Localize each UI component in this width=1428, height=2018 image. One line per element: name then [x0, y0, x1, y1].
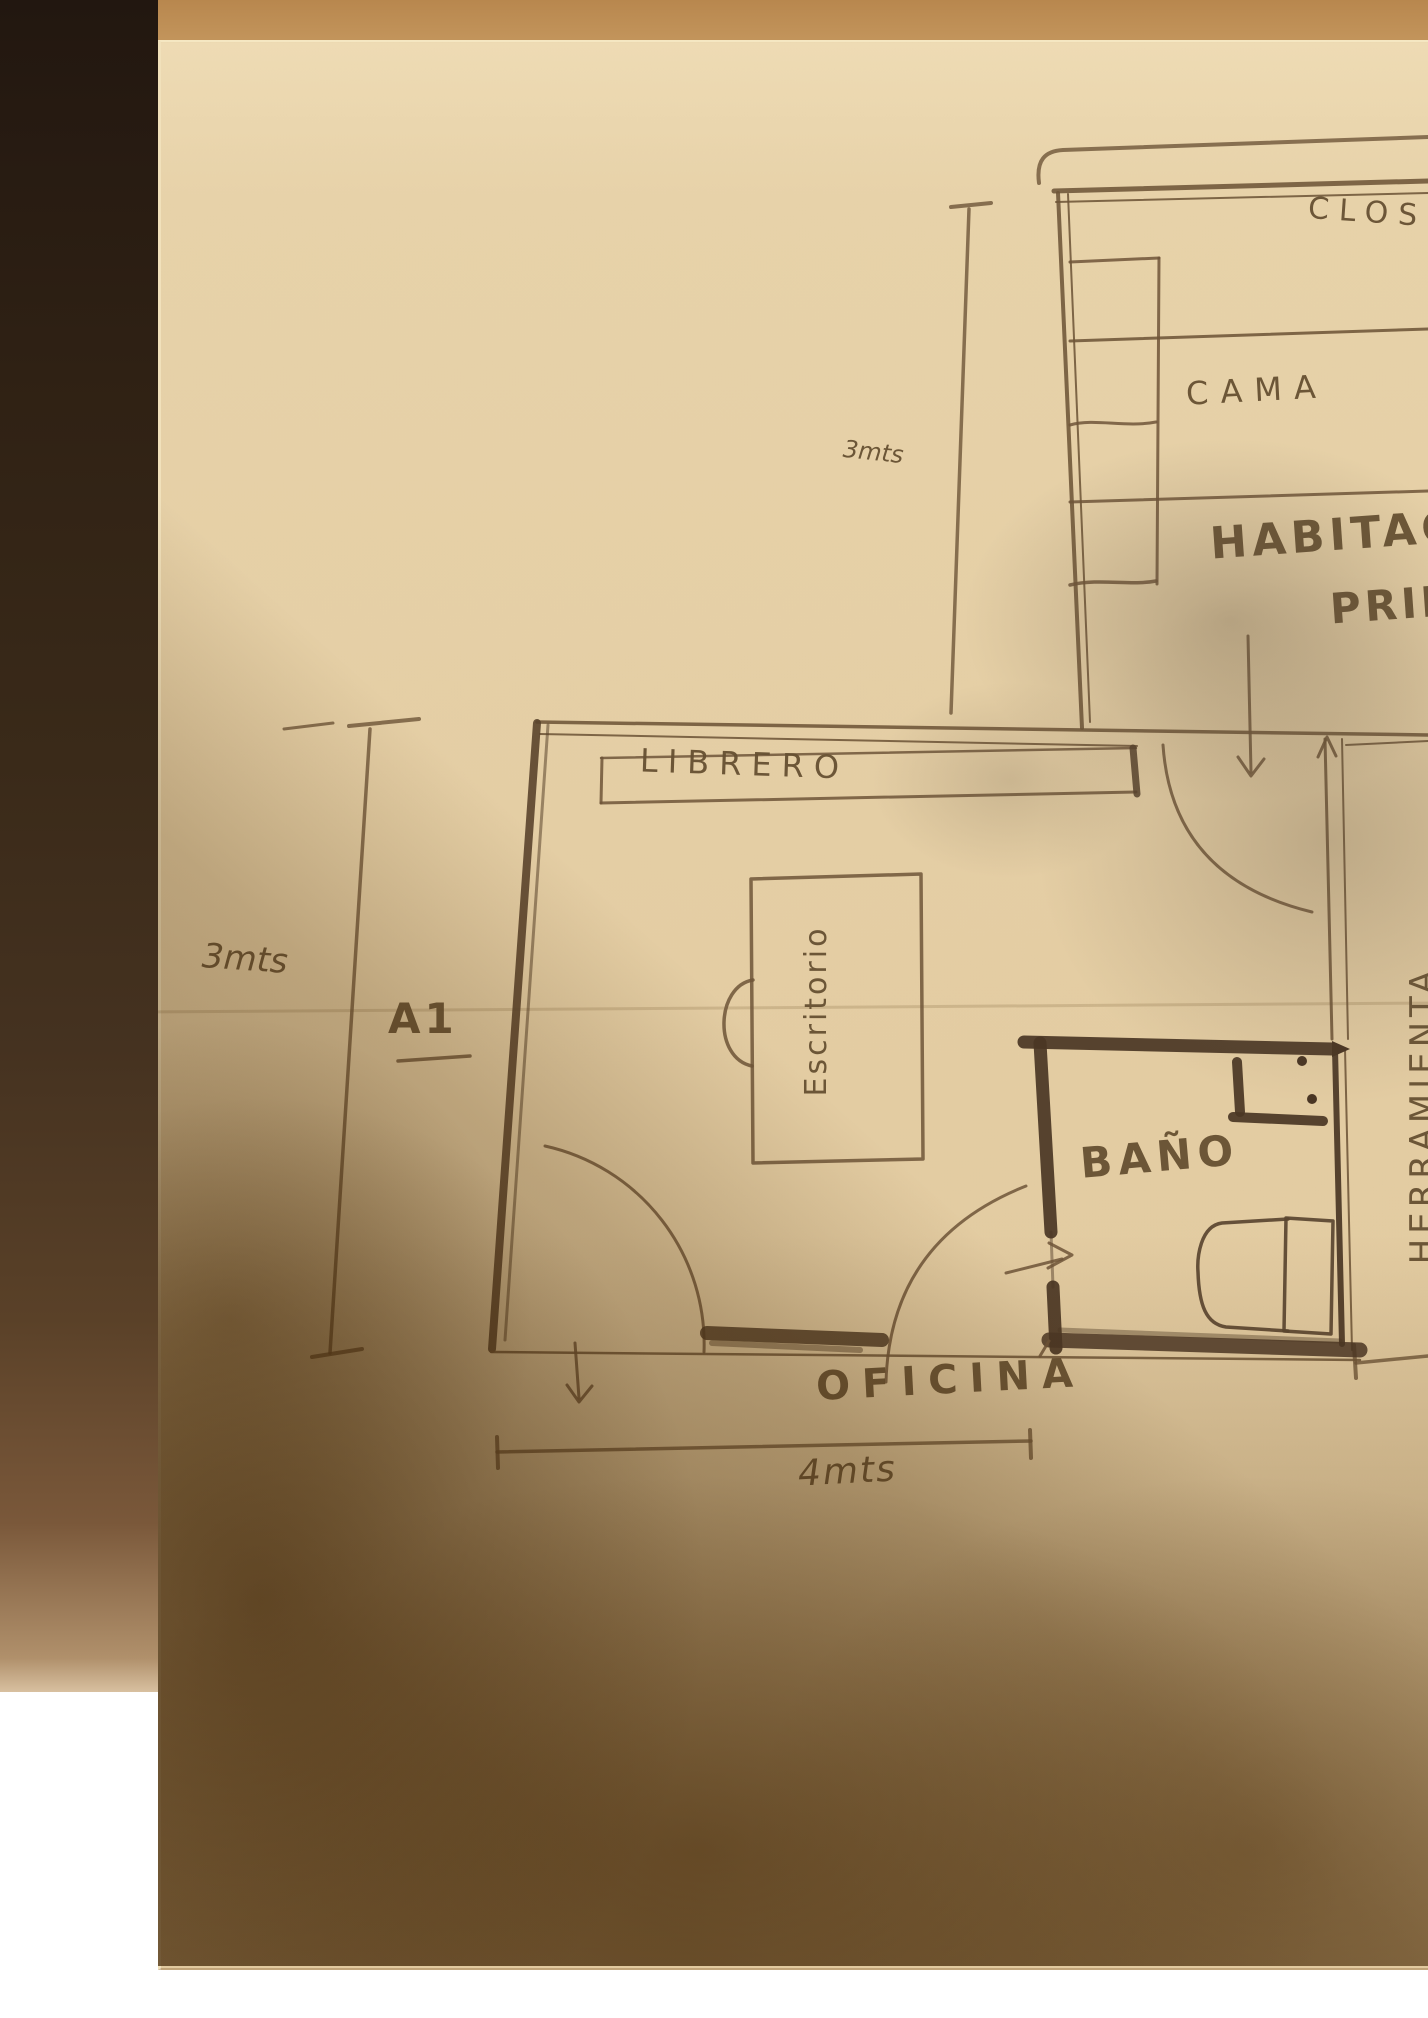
closet-label: CLOS [1307, 194, 1428, 232]
closet-line [1070, 329, 1428, 341]
bathroom [1024, 1041, 1360, 1350]
floorplan-photo: CLOS CAMA HABITAC PRIN 3mts LIBRERO Escr… [0, 0, 1428, 2018]
dimension-lines [284, 137, 1428, 1468]
chair-arc [724, 980, 753, 1066]
dim-3mts-office: 3mts [201, 939, 289, 979]
door-threshold [707, 1333, 882, 1340]
partition-wall [1325, 739, 1332, 1039]
dim-3mts-bedroom: 3mts [842, 437, 905, 467]
dim-4mts-office: 4mts [797, 1451, 898, 1492]
bedroom-walls [1054, 181, 1428, 728]
toilet-tank [1284, 1218, 1333, 1334]
door-arc-left [545, 1146, 704, 1352]
bathroom-top-wall [1024, 1042, 1332, 1049]
sink [1237, 1062, 1240, 1112]
office-entry-arrow [575, 1343, 579, 1398]
bookshelf-label: LIBRERO [640, 744, 850, 783]
office-walls [491, 722, 1428, 1360]
bedroom-door-arrow [1248, 636, 1251, 772]
bathroom-left-wall [1040, 1043, 1051, 1232]
desk-label: Escritorio [802, 886, 832, 1136]
bedroom-label-line2: PRIN [1329, 580, 1428, 631]
floorplan-drawing [0, 0, 1428, 2018]
doors [545, 745, 1312, 1382]
door-arc-bathroom-entry [886, 1186, 1026, 1382]
bathroom-right-wall [1335, 1049, 1342, 1344]
office-left-wall [492, 723, 537, 1349]
a1-underline [398, 1056, 470, 1061]
area-a1-label: A1 [388, 998, 458, 1040]
door-arc-bedroom [1163, 745, 1312, 912]
bed-label: CAMA [1185, 370, 1328, 409]
tool-room-label: HERRAMIENTA [1406, 935, 1428, 1295]
toilet-bowl [1198, 1219, 1288, 1331]
